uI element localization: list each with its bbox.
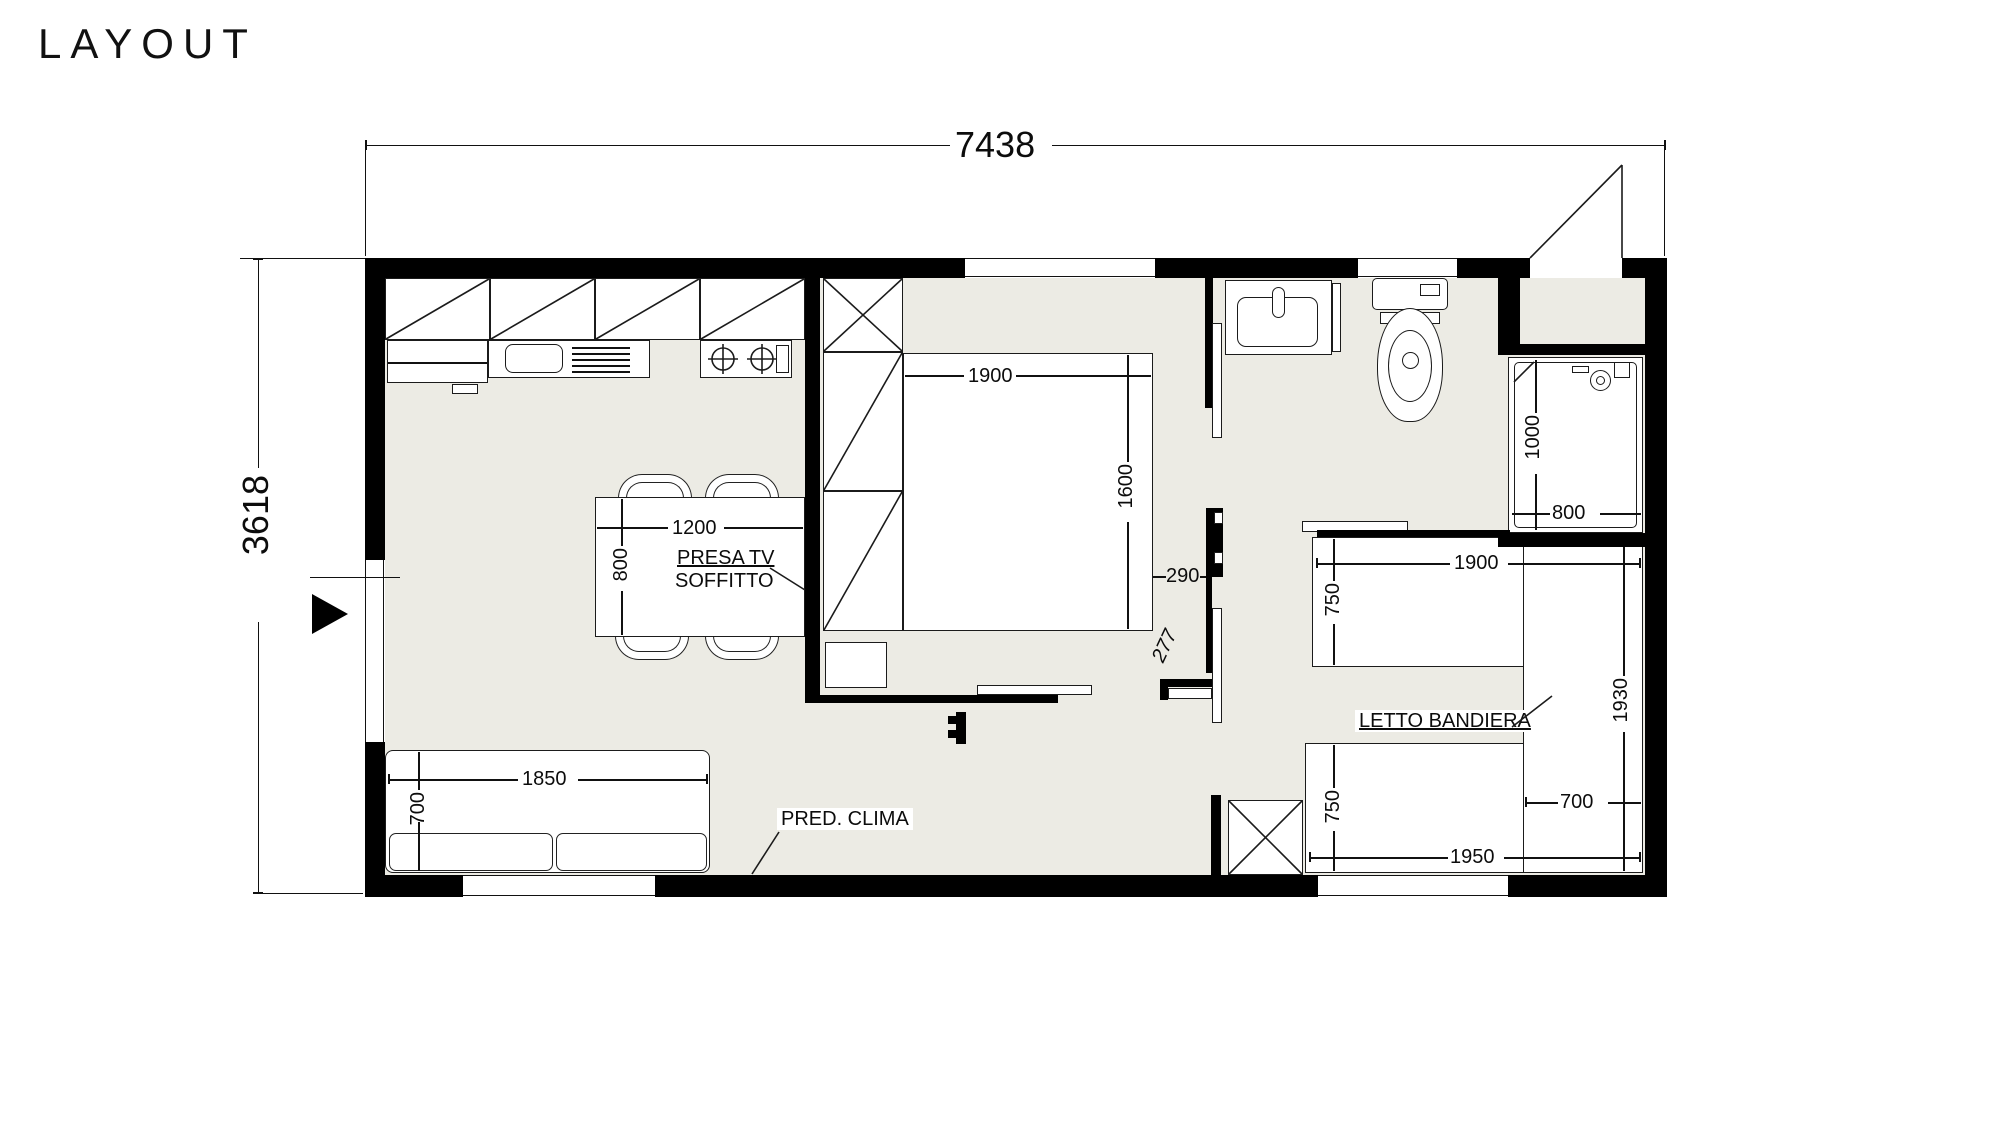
floor-plan-canvas: LAYOUT 1200 800 PRESA TV SOFFITTO 1850 7… bbox=[0, 0, 2000, 1125]
view-arrow bbox=[312, 594, 348, 634]
plan-linework bbox=[0, 0, 2000, 1125]
